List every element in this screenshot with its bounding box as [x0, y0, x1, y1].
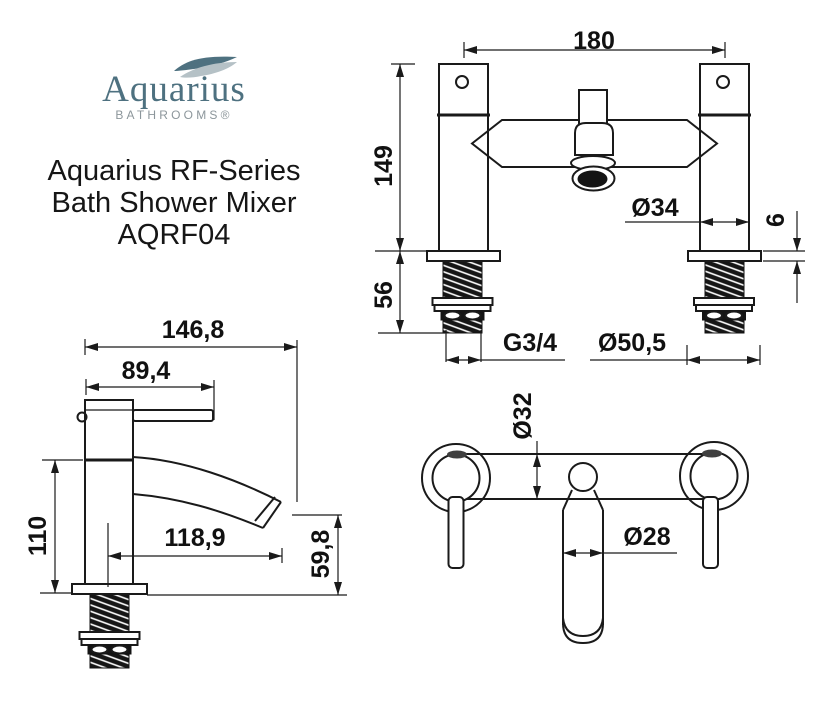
- product-title-line2: Bath Shower Mixer: [24, 187, 324, 219]
- dim-plan-spout: Ø28: [563, 523, 677, 557]
- dim-label-180: 180: [573, 27, 615, 55]
- product-title-line1: Aquarius RF-Series: [24, 155, 324, 187]
- dim-label-6: 6: [762, 213, 790, 227]
- dim-flange-diameter: Ø50,5: [590, 329, 760, 365]
- lever-handle: [133, 410, 213, 421]
- brand-tagline: BATHROOMS®: [54, 108, 294, 122]
- curved-spout: [133, 457, 281, 528]
- dim-label-598: 59,8: [307, 530, 335, 579]
- dim-centres: 180: [464, 27, 725, 58]
- wave-icon: [173, 54, 239, 80]
- plan-left-lever: [449, 497, 464, 568]
- dim-deck-thickness: 6: [762, 211, 805, 303]
- dim-label-56: 56: [370, 281, 398, 309]
- dim-label-o34: Ø34: [631, 194, 678, 222]
- dim-label-o28: Ø28: [623, 523, 670, 551]
- plan-left-handle: [422, 444, 490, 568]
- right-tail: [688, 251, 761, 333]
- dim-label-110: 110: [24, 516, 52, 556]
- left-tail: [427, 251, 500, 333]
- front-view-drawing: 180 149 56 Ø34: [355, 15, 818, 365]
- dim-reach: 118,9: [108, 523, 282, 587]
- plan-right-handle: [680, 442, 748, 568]
- dim-label-149: 149: [370, 145, 398, 187]
- plan-view-drawing: Ø32 Ø28: [415, 375, 805, 660]
- dim-label-o505: Ø50,5: [598, 329, 666, 357]
- dim-label-894: 89,4: [122, 357, 171, 385]
- dim-label-1468: 146,8: [162, 316, 225, 344]
- spec-sheet: Aquarius BATHROOMS® Aquarius RF-Series B…: [0, 0, 818, 710]
- dim-label-g34: G3/4: [503, 329, 557, 357]
- dim-label-o32: Ø32: [509, 392, 537, 439]
- product-title-line3: AQRF04: [24, 219, 324, 251]
- left-pillar: [437, 64, 490, 251]
- side-view-drawing: 146,8 89,4 110 118,9: [20, 310, 360, 700]
- dim-label-1189: 118,9: [164, 524, 225, 552]
- dim-pillar-diameter: Ø34: [625, 194, 749, 226]
- dim-height-chain: 149 56: [370, 64, 445, 333]
- spout-outlet: [571, 90, 615, 191]
- tail: [72, 584, 147, 668]
- plan-right-lever: [703, 497, 718, 568]
- product-title: Aquarius RF-Series Bath Shower Mixer AQR…: [24, 155, 324, 251]
- dim-plan-body: Ø32: [509, 392, 541, 499]
- dim-body-height: 110: [24, 460, 83, 593]
- dim-thread: G3/4: [446, 329, 565, 364]
